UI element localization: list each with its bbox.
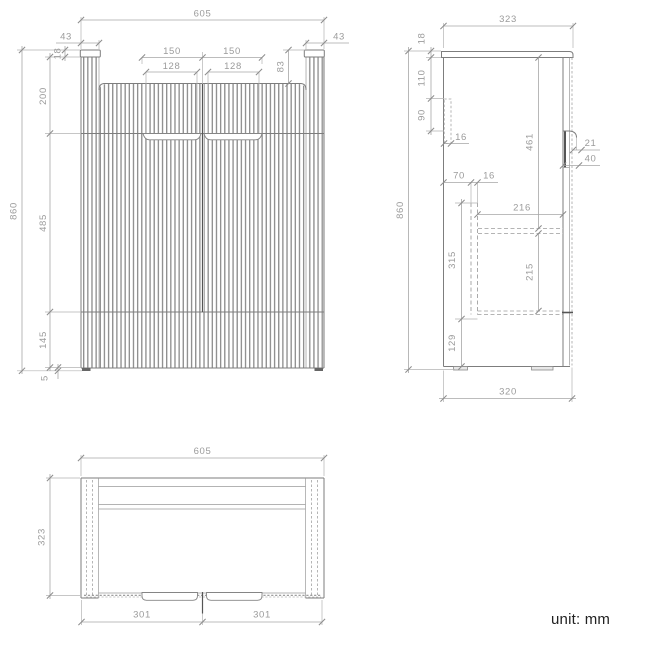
dim-side-front-opening: 461	[525, 133, 536, 151]
dim-front-top-panel: 83	[276, 61, 287, 73]
dim-side-bottom-section: 129	[447, 334, 458, 352]
dim-front-groove-left: 128	[163, 61, 181, 72]
dim-top-door-left: 301	[133, 610, 151, 621]
dim-side-bracket-width: 16	[455, 132, 467, 143]
dim-top-overall-width: 605	[194, 446, 212, 457]
technical-drawing: 605 43 43 18 200 485 145 5 860 150 150 1…	[0, 0, 650, 650]
dim-side-bracket-offset: 110	[417, 70, 428, 87]
dim-side-overall-depth: 323	[499, 14, 517, 25]
dim-front-recess-left: 150	[163, 46, 181, 57]
dim-front-overall-width: 605	[194, 9, 212, 20]
dim-front-drawer-section: 145	[38, 331, 49, 349]
side-foot-right	[532, 367, 554, 371]
dim-top-overall-depth: 323	[37, 528, 48, 546]
front-view: 605 43 43 18 200 485 145 5 860 150 150 1…	[9, 9, 350, 381]
top-handle-right	[207, 593, 263, 601]
dim-front-groove-right: 128	[224, 61, 242, 72]
side-countertop	[442, 52, 574, 58]
dim-front-overall-height: 860	[9, 202, 20, 220]
dim-side-handle-recess: 40	[585, 154, 597, 165]
top-outline	[81, 478, 324, 614]
dim-front-recess-right: 150	[223, 46, 241, 57]
dim-side-drawer-box: 315	[447, 251, 458, 269]
dim-front-door-section: 485	[38, 214, 49, 232]
dim-front-cap-height: 18	[53, 48, 64, 60]
wall-bracket-hidden	[444, 99, 451, 144]
foot-left	[82, 368, 91, 371]
unit-label: unit: mm	[551, 611, 610, 628]
dim-side-rail-width: 16	[483, 171, 495, 182]
dim-front-cap-right: 43	[333, 32, 345, 43]
dim-side-rail-offset: 70	[453, 171, 465, 182]
dim-front-feet: 5	[40, 375, 51, 381]
dim-front-cap-left: 43	[60, 32, 72, 43]
dim-side-bracket-length: 90	[417, 109, 428, 121]
dim-top-door-right: 301	[253, 610, 271, 621]
dim-side-top-thickness: 18	[417, 33, 428, 45]
top-handle-left	[142, 593, 198, 601]
handle-groove-right	[204, 134, 262, 140]
top-view: 605 323 301 301	[37, 446, 328, 625]
dim-side-interior-depth: 216	[513, 203, 531, 214]
handle-groove-left	[143, 134, 201, 140]
dim-side-handle-lip: 21	[585, 138, 597, 149]
dim-side-overall-height: 860	[395, 201, 406, 219]
dim-front-top-to-handles: 200	[38, 87, 49, 105]
dim-side-lower-opening: 215	[525, 263, 536, 281]
foot-right	[315, 368, 324, 371]
dim-side-base-depth: 320	[499, 387, 517, 398]
side-view: 323 18 110 90 16 461 21 40 70 16 216 315…	[395, 14, 600, 402]
